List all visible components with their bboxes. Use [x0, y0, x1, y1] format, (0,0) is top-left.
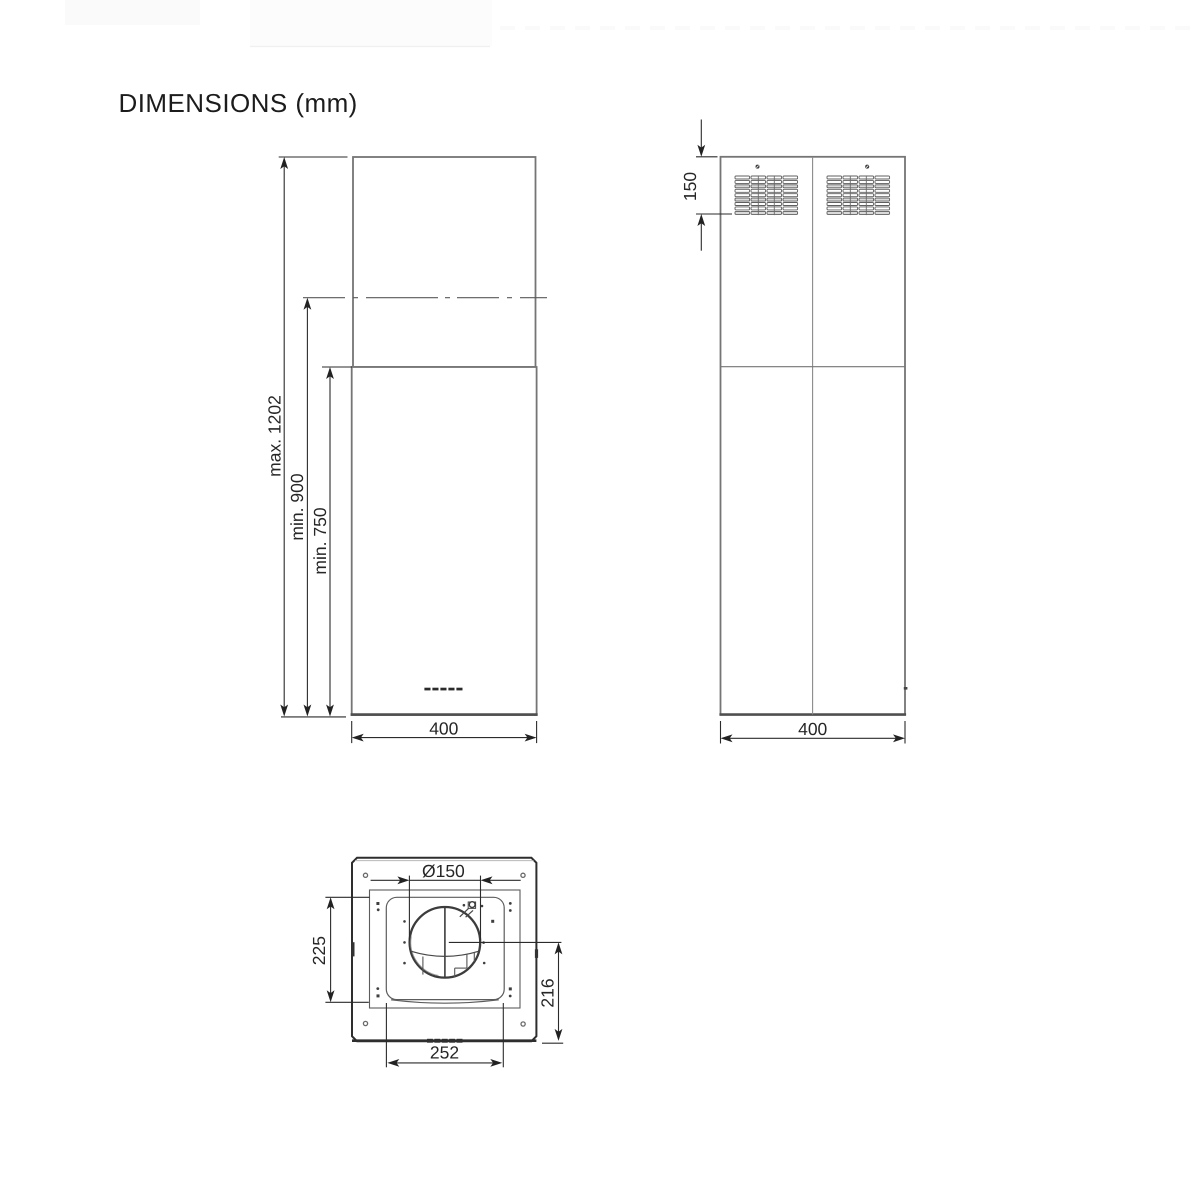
svg-text:252: 252 [430, 1043, 459, 1063]
svg-text:216: 216 [537, 978, 557, 1007]
svg-text:150: 150 [680, 172, 700, 201]
svg-text:max. 1202: max. 1202 [265, 395, 285, 477]
svg-text:Ø150: Ø150 [422, 861, 465, 881]
svg-text:400: 400 [429, 718, 458, 738]
svg-text:225: 225 [309, 936, 329, 965]
svg-text:DIMENSIONS (mm): DIMENSIONS (mm) [119, 88, 358, 118]
svg-text:min. 900: min. 900 [287, 473, 307, 540]
svg-text:min. 750: min. 750 [310, 507, 330, 574]
svg-text:400: 400 [798, 719, 827, 739]
